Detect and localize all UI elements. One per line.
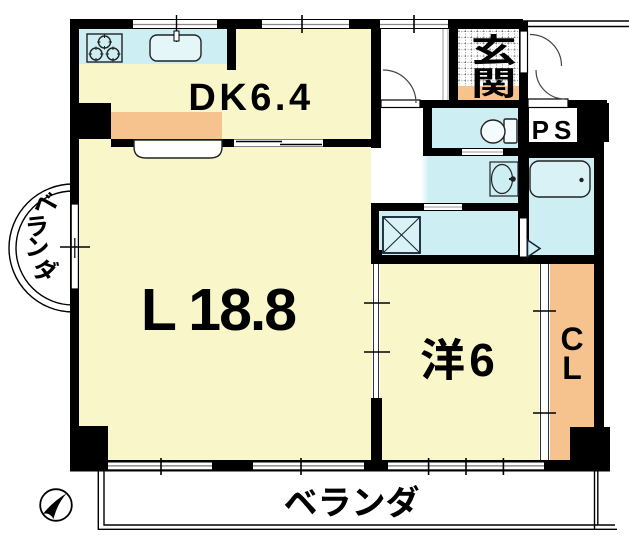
svg-text:PS: PS (532, 115, 577, 145)
svg-text:DK6.4: DK6.4 (188, 77, 313, 119)
svg-text:L 18.8: L 18.8 (141, 277, 295, 343)
svg-text:6: 6 (469, 334, 495, 386)
svg-text:L: L (562, 350, 582, 386)
